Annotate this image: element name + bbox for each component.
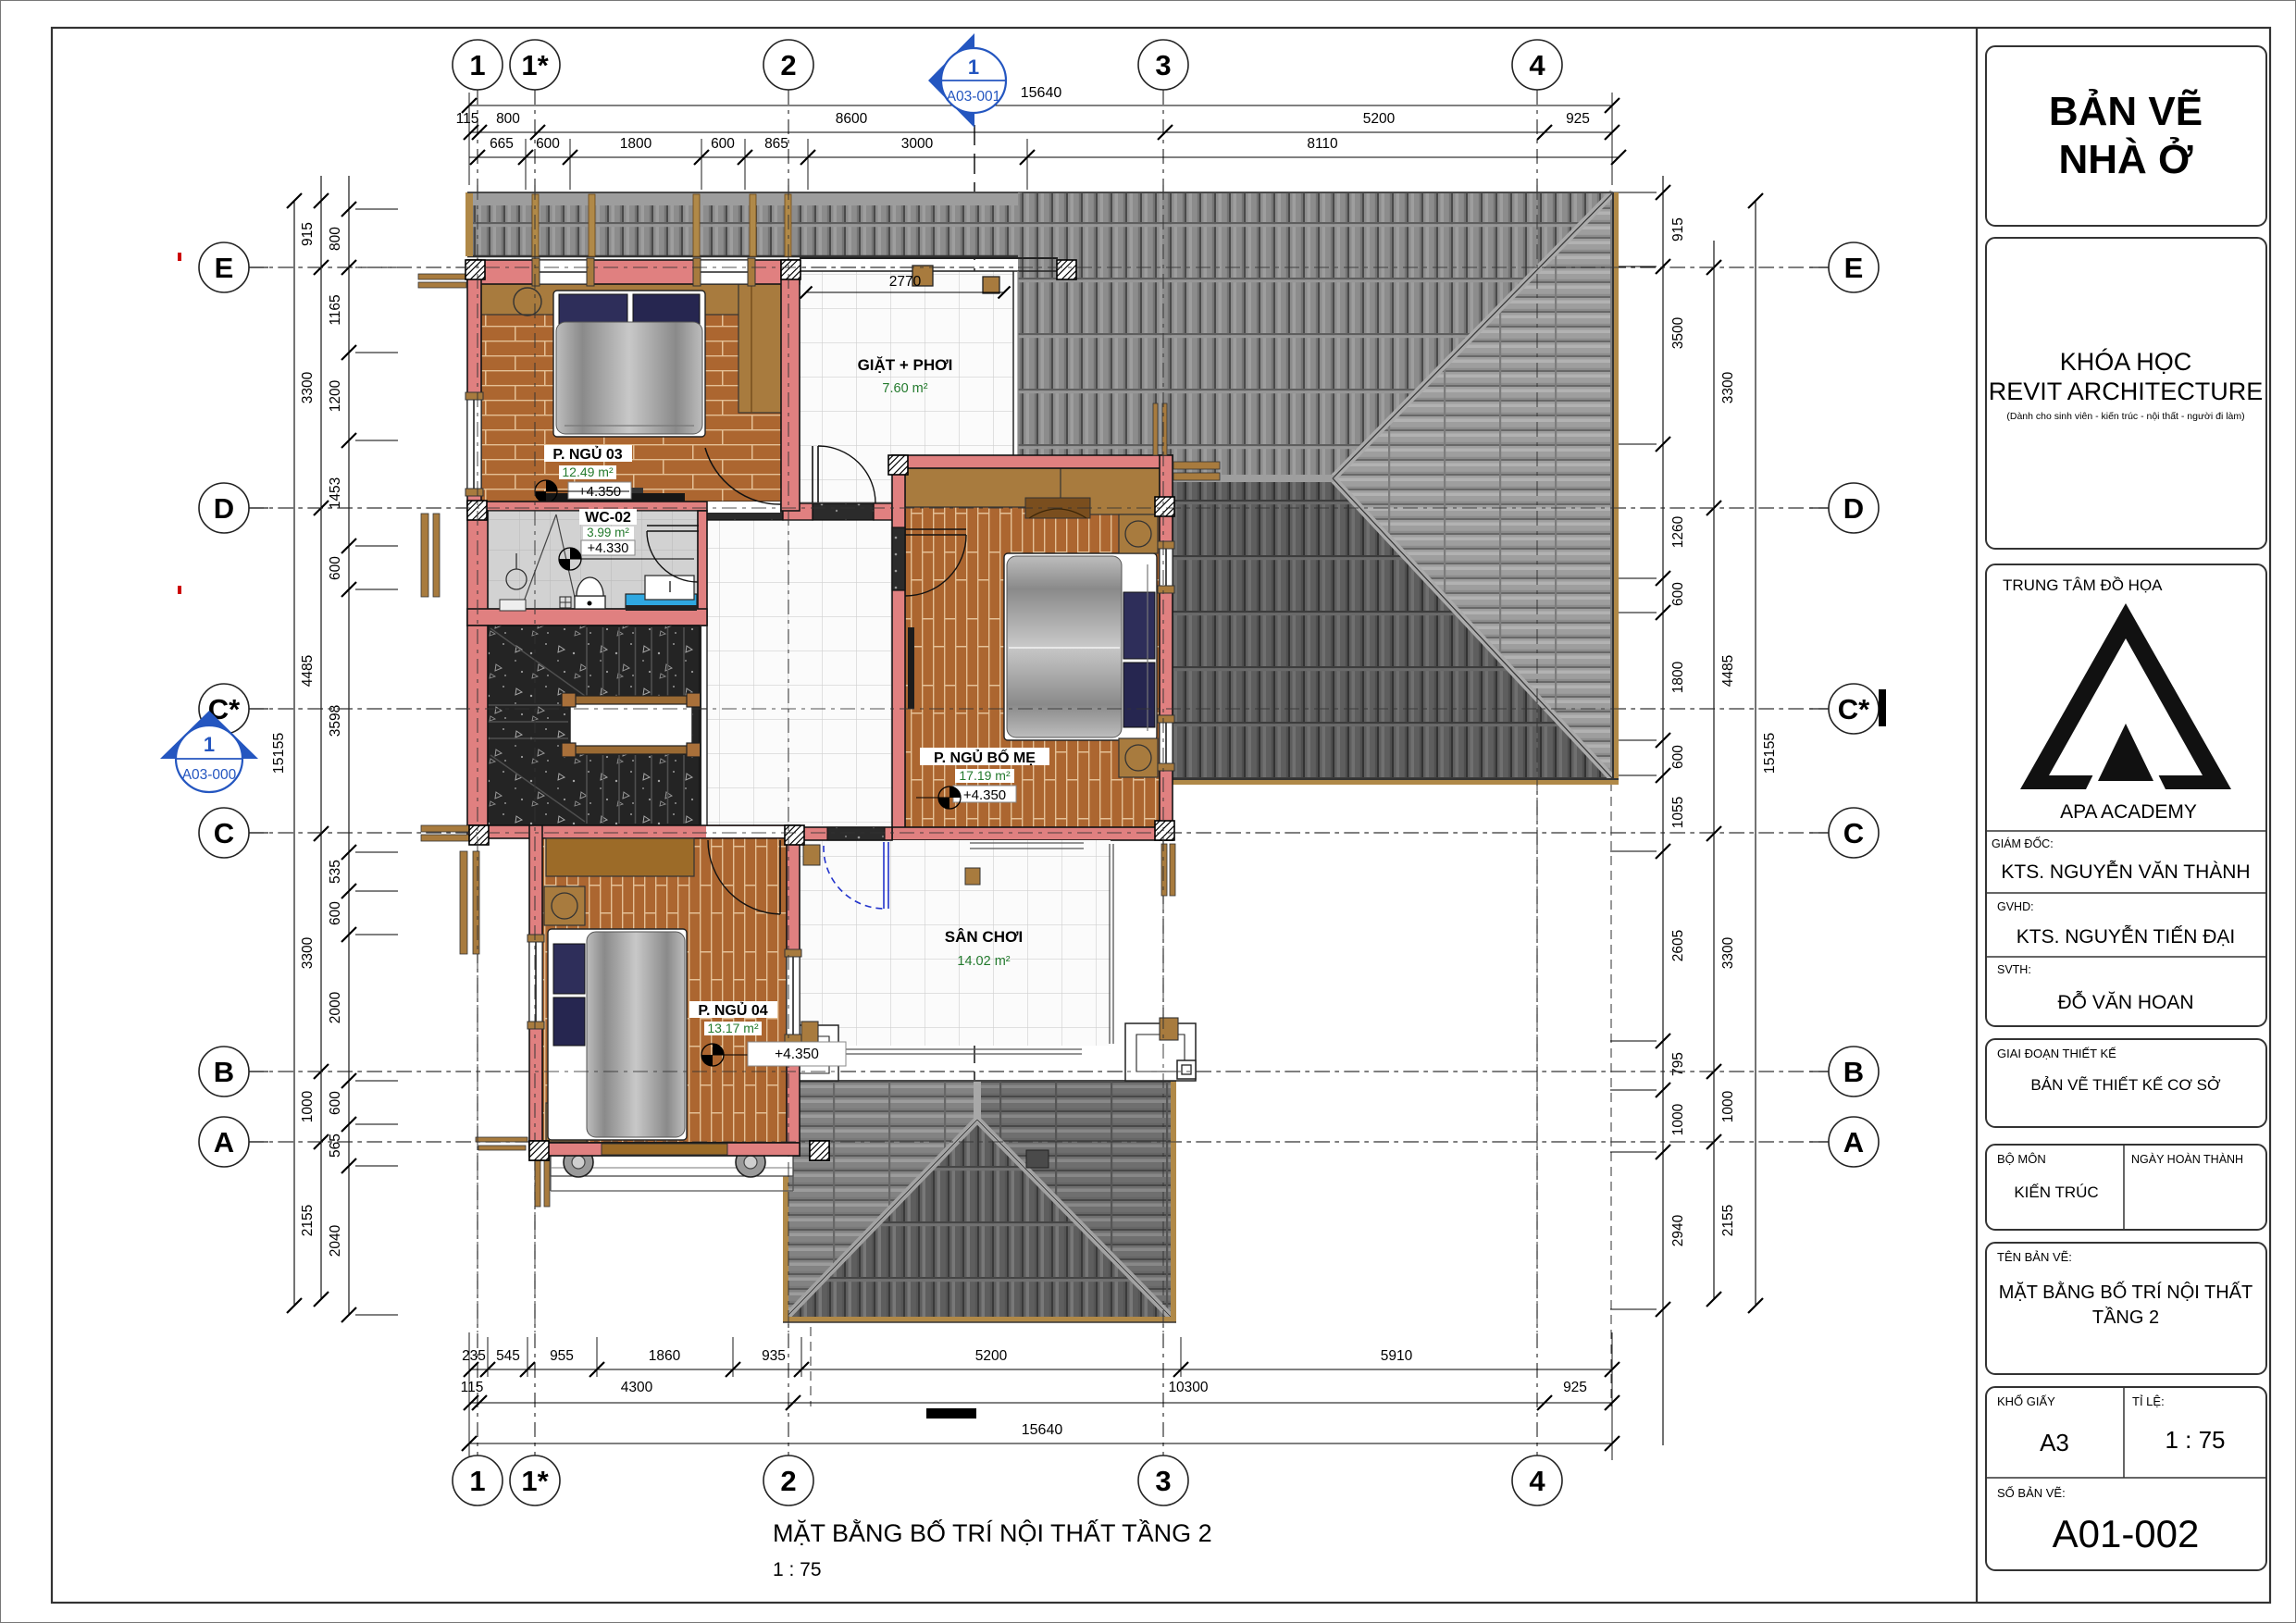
svg-text:NHÀ Ở: NHÀ Ở xyxy=(2058,135,2193,182)
svg-text:535: 535 xyxy=(328,860,343,884)
svg-text:P. NGỦ BỐ MẸ: P. NGỦ BỐ MẸ xyxy=(934,748,1036,766)
svg-text:600: 600 xyxy=(711,136,735,152)
svg-text:5200: 5200 xyxy=(1363,111,1396,127)
svg-text:GVHD:: GVHD: xyxy=(1997,900,2034,913)
svg-text:2: 2 xyxy=(780,1465,796,1497)
svg-text:800: 800 xyxy=(328,227,343,251)
svg-text:925: 925 xyxy=(1563,1380,1587,1395)
svg-text:A01-002: A01-002 xyxy=(2053,1512,2200,1555)
svg-text:A3: A3 xyxy=(2040,1429,2069,1456)
svg-text:10300: 10300 xyxy=(1168,1380,1208,1395)
svg-text:+4.350: +4.350 xyxy=(775,1047,819,1062)
svg-text:1000: 1000 xyxy=(1720,1090,1736,1122)
svg-text:3: 3 xyxy=(1155,49,1171,81)
svg-text:14.02 m²: 14.02 m² xyxy=(957,954,1010,969)
svg-text:A: A xyxy=(1843,1126,1864,1158)
svg-text:5910: 5910 xyxy=(1381,1348,1413,1364)
svg-text:GIẶT + PHƠI: GIẶT + PHƠI xyxy=(858,356,953,374)
svg-text:1 : 75: 1 : 75 xyxy=(773,1559,822,1580)
svg-text:2155: 2155 xyxy=(300,1205,316,1236)
svg-text:600: 600 xyxy=(328,1091,343,1115)
svg-text:545: 545 xyxy=(496,1348,520,1364)
svg-text:D: D xyxy=(214,492,234,525)
svg-text:600: 600 xyxy=(1670,745,1686,769)
svg-text:15155: 15155 xyxy=(1762,733,1778,774)
svg-text:C*: C* xyxy=(1838,693,1870,725)
svg-text:WC-02: WC-02 xyxy=(585,510,631,526)
svg-text:7.60 m²: 7.60 m² xyxy=(882,381,927,396)
svg-text:4: 4 xyxy=(1529,1465,1545,1497)
svg-text:TẦNG 2: TẦNG 2 xyxy=(2092,1307,2159,1328)
svg-text:955: 955 xyxy=(550,1348,574,1364)
svg-text:115: 115 xyxy=(456,111,479,127)
svg-text:SÂN CHƠI: SÂN CHƠI xyxy=(945,928,1023,946)
svg-text:E: E xyxy=(215,252,234,284)
svg-text:1 : 75: 1 : 75 xyxy=(2165,1426,2225,1454)
svg-text:2000: 2000 xyxy=(328,991,343,1023)
svg-text:D: D xyxy=(1843,492,1864,525)
svg-text:MẶT BẰNG BỐ TRÍ NỘI THẤT TẦNG: MẶT BẰNG BỐ TRÍ NỘI THẤT TẦNG 2 xyxy=(773,1518,1212,1547)
svg-text:1453: 1453 xyxy=(328,477,343,509)
svg-text:1000: 1000 xyxy=(1670,1103,1686,1135)
svg-text:8110: 8110 xyxy=(1307,136,1338,152)
svg-text:4: 4 xyxy=(1529,49,1545,81)
svg-text:1860: 1860 xyxy=(649,1348,681,1364)
svg-text:2940: 2940 xyxy=(1670,1214,1686,1246)
svg-text:KHỔ GIẤY: KHỔ GIẤY xyxy=(1997,1394,2055,1408)
svg-text:865: 865 xyxy=(764,136,788,152)
svg-text:665: 665 xyxy=(490,136,514,152)
svg-text:MẶT BẰNG BỐ TRÍ NỘI THẤT: MẶT BẰNG BỐ TRÍ NỘI THẤT xyxy=(1999,1281,2253,1303)
svg-text:1000: 1000 xyxy=(300,1090,316,1122)
svg-text:1260: 1260 xyxy=(1670,515,1686,548)
svg-text:KIẾN TRÚC: KIẾN TRÚC xyxy=(2014,1183,2098,1201)
svg-text:1200: 1200 xyxy=(328,379,343,412)
svg-text:+4.330: +4.330 xyxy=(588,541,629,556)
svg-text:3300: 3300 xyxy=(300,371,316,403)
svg-text:SỐ BẢN VẼ:: SỐ BẢN VẼ: xyxy=(1997,1486,2066,1500)
svg-text:1: 1 xyxy=(968,56,979,79)
svg-text:3598: 3598 xyxy=(328,705,343,737)
svg-text:12.49 m²: 12.49 m² xyxy=(562,465,614,479)
svg-text:3300: 3300 xyxy=(300,936,316,969)
svg-text:+4.350: +4.350 xyxy=(578,484,621,500)
svg-text:600: 600 xyxy=(328,556,343,580)
svg-text:C: C xyxy=(214,817,234,849)
svg-text:1165: 1165 xyxy=(328,294,343,325)
svg-text:C: C xyxy=(1843,817,1864,849)
svg-text:915: 915 xyxy=(300,222,316,246)
svg-text:(Dành cho sinh viên - kiến trú: (Dành cho sinh viên - kiến trúc - nội th… xyxy=(2006,411,2244,422)
svg-text:13.17 m²: 13.17 m² xyxy=(707,1021,759,1035)
svg-text:KTS. NGUYỄN TIẾN ĐẠI: KTS. NGUYỄN TIẾN ĐẠI xyxy=(2017,926,2236,948)
svg-text:KHÓA HỌC: KHÓA HỌC xyxy=(2060,347,2192,376)
svg-text:1: 1 xyxy=(469,49,485,81)
svg-text:600: 600 xyxy=(1670,582,1686,606)
svg-text:15155: 15155 xyxy=(271,733,287,774)
svg-text:TỈ LỆ:: TỈ LỆ: xyxy=(2132,1394,2165,1408)
svg-text:600: 600 xyxy=(328,901,343,925)
svg-text:3500: 3500 xyxy=(1670,316,1686,349)
svg-text:BẢN VẼ: BẢN VẼ xyxy=(2049,88,2203,134)
svg-text:TÊN BẢN VẼ:: TÊN BẢN VẼ: xyxy=(1997,1250,2072,1264)
svg-text:SVTH:: SVTH: xyxy=(1997,963,2031,976)
svg-text:BỘ MÔN: BỘ MÔN xyxy=(1997,1152,2046,1166)
svg-text:3300: 3300 xyxy=(1720,936,1736,969)
svg-text:4300: 4300 xyxy=(621,1380,653,1395)
svg-text:APA ACADEMY: APA ACADEMY xyxy=(2060,801,2197,823)
svg-text:1*: 1* xyxy=(521,1465,549,1497)
svg-text:235: 235 xyxy=(462,1348,486,1364)
svg-text:3000: 3000 xyxy=(901,136,934,152)
svg-text:P. NGỦ 03: P. NGỦ 03 xyxy=(552,445,622,463)
svg-text:935: 935 xyxy=(762,1348,786,1364)
svg-text:TRUNG TÂM ĐỒ HỌA: TRUNG TÂM ĐỒ HỌA xyxy=(2003,576,2163,594)
svg-text:A: A xyxy=(214,1126,234,1158)
svg-text:795: 795 xyxy=(1670,1052,1686,1076)
svg-text:4485: 4485 xyxy=(300,655,316,687)
svg-text:3300: 3300 xyxy=(1720,371,1736,403)
svg-text:+4.350: +4.350 xyxy=(963,787,1006,803)
svg-text:ĐỖ VĂN HOAN: ĐỖ VĂN HOAN xyxy=(2057,991,2193,1013)
svg-text:17.19 m²: 17.19 m² xyxy=(959,768,1011,783)
svg-text:A03-001: A03-001 xyxy=(947,89,1001,105)
svg-text:B: B xyxy=(214,1056,234,1088)
svg-text:1: 1 xyxy=(204,733,215,756)
svg-text:800: 800 xyxy=(496,111,520,127)
svg-text:8600: 8600 xyxy=(836,111,868,127)
svg-text:565: 565 xyxy=(328,1134,343,1158)
svg-text:2770: 2770 xyxy=(889,274,922,290)
svg-text:B: B xyxy=(1843,1056,1864,1088)
svg-text:NGÀY HOÀN THÀNH: NGÀY HOÀN THÀNH xyxy=(2131,1152,2243,1166)
svg-text:4485: 4485 xyxy=(1720,655,1736,687)
svg-text:2040: 2040 xyxy=(328,1224,343,1257)
svg-text:2: 2 xyxy=(780,49,796,81)
svg-text:2155: 2155 xyxy=(1720,1205,1736,1236)
svg-text:925: 925 xyxy=(1566,111,1590,127)
svg-text:E: E xyxy=(1844,252,1864,284)
svg-text:115: 115 xyxy=(461,1380,484,1395)
svg-text:15640: 15640 xyxy=(1022,1422,1063,1438)
svg-text:1800: 1800 xyxy=(1670,661,1686,693)
svg-text:1*: 1* xyxy=(521,49,549,81)
svg-text:GIAI ĐOẠN THIẾT KẾ: GIAI ĐOẠN THIẾT KẾ xyxy=(1997,1047,2116,1060)
svg-text:1: 1 xyxy=(469,1465,485,1497)
svg-text:A03-000: A03-000 xyxy=(182,767,237,783)
svg-text:915: 915 xyxy=(1670,217,1686,242)
svg-text:2605: 2605 xyxy=(1670,930,1686,961)
svg-text:1055: 1055 xyxy=(1670,797,1686,828)
svg-text:3.99 m²: 3.99 m² xyxy=(587,526,629,539)
svg-text:3: 3 xyxy=(1155,1465,1171,1497)
svg-text:BẢN VẼ THIẾT KẾ CƠ SỞ: BẢN VẼ THIẾT KẾ CƠ SỞ xyxy=(2030,1076,2221,1094)
svg-text:1800: 1800 xyxy=(620,136,652,152)
svg-text:5200: 5200 xyxy=(975,1348,1008,1364)
svg-text:P. NGỦ 04: P. NGỦ 04 xyxy=(698,1001,767,1019)
svg-text:15640: 15640 xyxy=(1021,85,1062,101)
svg-text:REVIT ARCHITECTURE: REVIT ARCHITECTURE xyxy=(1989,378,2264,405)
svg-text:600: 600 xyxy=(536,136,560,152)
svg-text:GIÁM ĐỐC:: GIÁM ĐỐC: xyxy=(1992,836,2054,850)
svg-text:KTS. NGUYỄN VĂN THÀNH: KTS. NGUYỄN VĂN THÀNH xyxy=(2001,861,2250,883)
